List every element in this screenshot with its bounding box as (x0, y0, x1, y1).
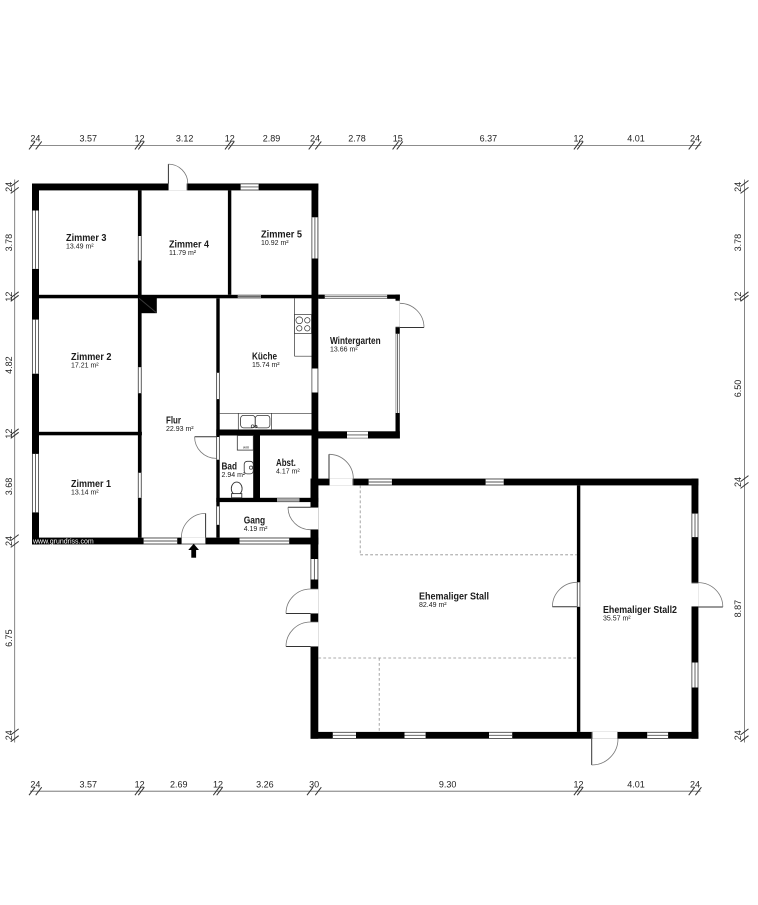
svg-text:13.49 m²: 13.49 m² (66, 244, 94, 251)
svg-text:Wintergarten: Wintergarten (330, 335, 381, 347)
svg-text:Gang: Gang (244, 515, 266, 527)
svg-text:Flur: Flur (166, 415, 181, 427)
svg-text:24: 24 (690, 779, 700, 789)
svg-text:24: 24 (310, 133, 320, 143)
svg-text:Ehemaliger Stall: Ehemaliger Stall (419, 591, 489, 603)
svg-text:wm: wm (243, 445, 250, 450)
svg-text:24: 24 (4, 730, 14, 740)
svg-text:6.50: 6.50 (733, 380, 743, 398)
svg-text:15.74 m²: 15.74 m² (252, 362, 280, 369)
svg-text:12: 12 (4, 292, 14, 302)
svg-text:9.30: 9.30 (439, 779, 457, 789)
svg-text:8.87: 8.87 (733, 600, 743, 618)
svg-text:3.78: 3.78 (4, 234, 14, 252)
svg-text:Zimmer 2: Zimmer 2 (71, 351, 112, 363)
svg-text:24: 24 (4, 536, 14, 546)
svg-text:6.75: 6.75 (4, 629, 14, 647)
svg-text:4.19 m²: 4.19 m² (244, 526, 268, 533)
svg-text:12: 12 (733, 292, 743, 302)
svg-text:24: 24 (30, 133, 40, 143)
svg-text:Abst.: Abst. (276, 457, 296, 469)
svg-text:12: 12 (135, 779, 145, 789)
svg-text:13.14 m²: 13.14 m² (71, 490, 99, 497)
svg-text:30: 30 (309, 779, 319, 789)
svg-text:3.57: 3.57 (80, 779, 98, 789)
svg-text:2.94 m²: 2.94 m² (222, 472, 246, 479)
svg-text:www.grundriss.com: www.grundriss.com (32, 538, 94, 545)
svg-text:Zimmer 1: Zimmer 1 (71, 478, 111, 490)
svg-text:Küche: Küche (252, 351, 277, 363)
svg-text:3.26: 3.26 (256, 779, 274, 789)
svg-text:2.89: 2.89 (263, 133, 281, 143)
svg-text:Bad: Bad (222, 461, 238, 473)
svg-text:12: 12 (135, 133, 145, 143)
svg-text:15: 15 (393, 133, 403, 143)
svg-text:24: 24 (30, 779, 40, 789)
svg-text:11.79 m²: 11.79 m² (169, 250, 197, 257)
svg-text:3.57: 3.57 (80, 133, 98, 143)
svg-text:12: 12 (225, 133, 235, 143)
svg-text:22.93 m²: 22.93 m² (166, 426, 194, 433)
svg-text:4.82: 4.82 (4, 356, 14, 374)
svg-text:12: 12 (213, 779, 223, 789)
svg-text:3.68: 3.68 (4, 478, 14, 496)
svg-text:4.01: 4.01 (627, 779, 645, 789)
svg-text:24: 24 (733, 477, 743, 487)
svg-text:Zimmer 4: Zimmer 4 (169, 239, 209, 251)
svg-text:17.21 m²: 17.21 m² (71, 363, 99, 370)
svg-text:4.01: 4.01 (627, 133, 645, 143)
svg-text:24: 24 (733, 730, 743, 740)
svg-text:12: 12 (573, 133, 583, 143)
svg-text:24: 24 (733, 182, 743, 192)
svg-text:Zimmer 5: Zimmer 5 (261, 229, 302, 241)
svg-text:4.17 m²: 4.17 m² (276, 469, 300, 476)
svg-text:24: 24 (690, 133, 700, 143)
svg-text:3.12: 3.12 (176, 133, 194, 143)
svg-text:2.69: 2.69 (170, 779, 188, 789)
svg-text:6.37: 6.37 (480, 133, 498, 143)
svg-text:3.78: 3.78 (733, 234, 743, 252)
svg-text:13.66 m²: 13.66 m² (330, 347, 358, 354)
svg-text:10.92 m²: 10.92 m² (261, 240, 289, 247)
svg-text:24: 24 (4, 182, 14, 192)
svg-text:82.49 m²: 82.49 m² (419, 602, 447, 609)
svg-text:Ehemaliger Stall2: Ehemaliger Stall2 (603, 604, 677, 616)
svg-text:Zimmer 3: Zimmer 3 (66, 232, 107, 244)
svg-text:2.78: 2.78 (348, 133, 366, 143)
svg-text:12: 12 (4, 429, 14, 439)
svg-text:12: 12 (573, 779, 583, 789)
svg-text:35.57 m²: 35.57 m² (603, 616, 631, 623)
